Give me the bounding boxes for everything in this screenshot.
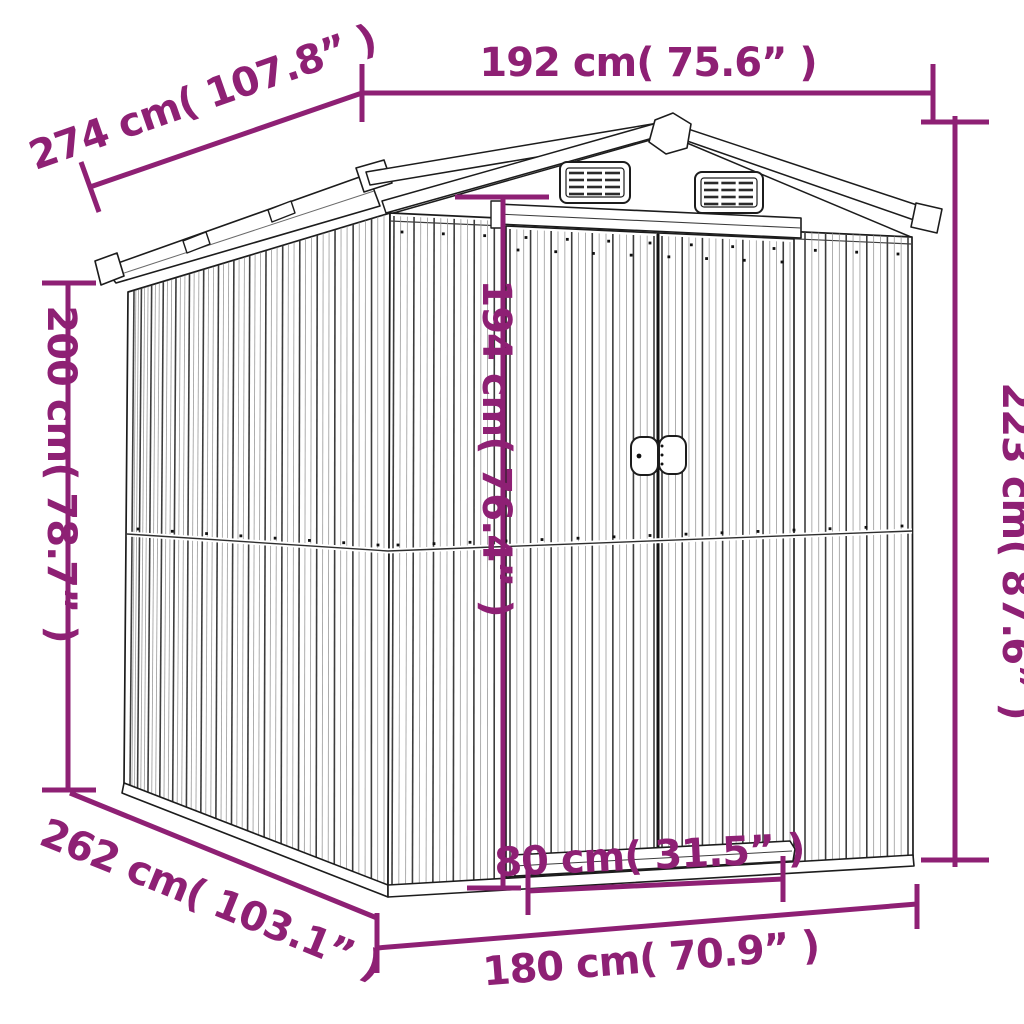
roof-eave-cap-right [911, 203, 942, 233]
dim-roof-depth: 274 cm( 107.8” ) [23, 16, 382, 212]
dim-wall-height: 200 cm( 78.7” ) [38, 283, 96, 790]
dim-door-height-label: 194 cm( 76.4” ) [473, 279, 519, 616]
product-dimension-image: 192 cm( 75.6” ) 274 cm( 107.8” ) 200 cm(… [0, 0, 1024, 1024]
dim-total-height-label: 223 cm( 87.6” ) [993, 382, 1024, 719]
sliding-door-right [658, 233, 794, 868]
dim-roof-depth-label: 274 cm( 107.8” ) [23, 16, 382, 180]
dim-door-width: 80 cm( 31.5” ) [493, 826, 805, 915]
dim-wall-height-label: 200 cm( 78.7” ) [38, 305, 84, 642]
dim-base-width: 180 cm( 70.9” ) [377, 884, 917, 995]
diagram-canvas: 192 cm( 75.6” ) 274 cm( 107.8” ) 200 cm(… [0, 0, 1024, 1024]
dim-roof-width-label: 192 cm( 75.6” ) [479, 40, 816, 86]
dim-roof-width: 192 cm( 75.6” ) [362, 40, 933, 122]
sliding-door-left [506, 226, 658, 877]
door-track-end-bracket [491, 201, 502, 228]
